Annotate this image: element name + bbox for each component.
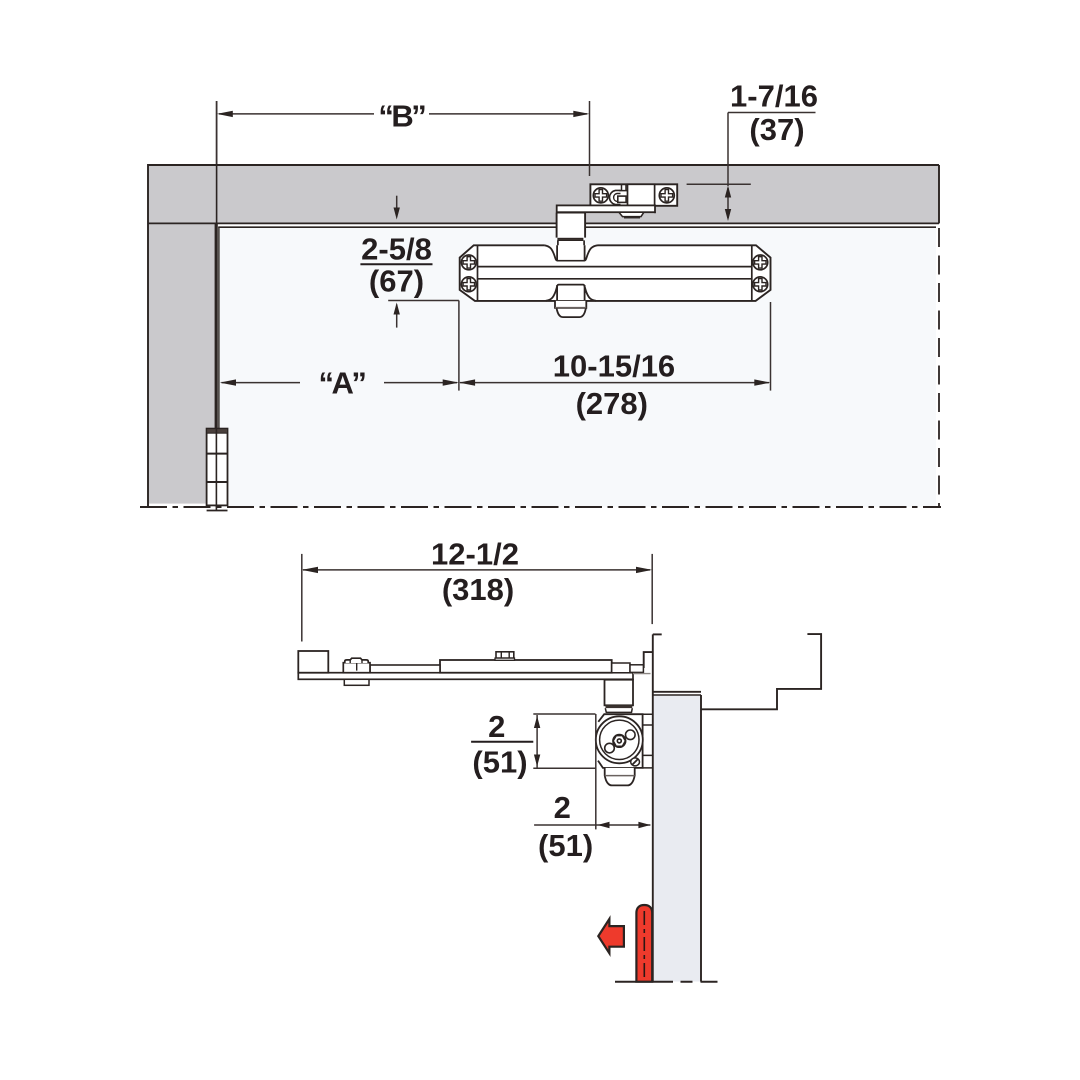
svg-text:(318): (318) — [442, 572, 514, 607]
svg-text:1-7/16: 1-7/16 — [730, 79, 818, 114]
svg-text:“A”: “A” — [319, 366, 366, 401]
svg-text:(67): (67) — [369, 263, 424, 298]
svg-text:10-15/16: 10-15/16 — [553, 348, 675, 383]
svg-text:(51): (51) — [472, 745, 527, 780]
svg-text:(278): (278) — [576, 386, 648, 421]
svg-text:“B”: “B” — [378, 99, 425, 134]
svg-text:12-1/2: 12-1/2 — [431, 537, 519, 572]
svg-text:(51): (51) — [538, 828, 593, 863]
svg-text:(37): (37) — [749, 112, 804, 147]
svg-text:2: 2 — [554, 790, 571, 825]
svg-text:2-5/8: 2-5/8 — [361, 232, 432, 267]
svg-text:2: 2 — [488, 709, 505, 744]
